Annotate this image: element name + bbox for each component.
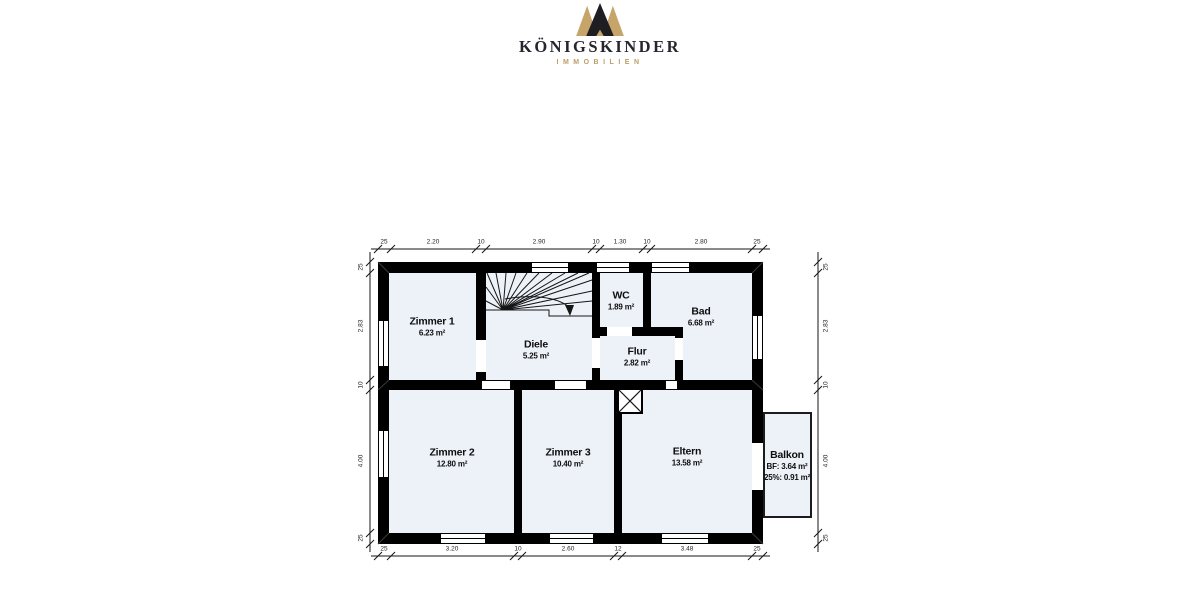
dim-label-top-6: 10 <box>643 239 650 246</box>
dim-label-bottom-1: 3.20 <box>446 546 459 553</box>
door-wc-flur <box>607 327 632 336</box>
window-left-zimmer2 <box>378 430 389 478</box>
dim-label-bottom-0: 25 <box>380 546 387 553</box>
window-bottom-zimmer3 <box>549 533 594 544</box>
room-bad-lower <box>683 327 752 380</box>
dim-label-right-2: 10 <box>823 381 830 388</box>
room-label-zimmer3: Zimmer 3 10.40 m² <box>545 447 590 469</box>
window-top-diele <box>531 262 569 273</box>
door-flur-eltern <box>665 380 678 390</box>
page: KÖNIGSKINDER IMMOBILIEN <box>0 0 1200 600</box>
dim-label-bottom-2: 10 <box>514 546 521 553</box>
dim-label-left-4: 25 <box>358 534 365 541</box>
dim-label-top-8: 25 <box>753 239 760 246</box>
dim-label-bottom-6: 25 <box>753 546 760 553</box>
room-label-zimmer1: Zimmer 1 6.23 m² <box>409 316 454 338</box>
dim-label-bottom-3: 2.60 <box>562 546 575 553</box>
window-bottom-zimmer2 <box>440 533 486 544</box>
dim-label-left-3: 4.00 <box>358 455 365 468</box>
brand-name: KÖNIGSKINDER <box>0 37 1200 57</box>
dim-label-right-0: 25 <box>823 263 830 270</box>
door-balcony <box>752 443 763 490</box>
door-diele-zimmer2 <box>481 380 511 390</box>
dim-label-right-3: 4.00 <box>823 455 830 468</box>
dim-label-top-3: 2.90 <box>533 239 546 246</box>
window-top-wc <box>596 262 630 273</box>
dim-label-left-2: 10 <box>358 381 365 388</box>
dim-label-top-7: 2.80 <box>695 239 708 246</box>
dim-label-top-2: 10 <box>477 239 484 246</box>
dim-label-top-4: 10 <box>592 239 599 246</box>
dim-label-top-5: 1.30 <box>614 239 627 246</box>
window-left-zimmer1 <box>378 320 389 367</box>
chimney <box>617 388 643 414</box>
dim-label-bottom-4: 12 <box>614 546 621 553</box>
room-label-bad: Bad 6.68 m² <box>688 306 714 328</box>
dim-label-bottom-5: 3.48 <box>681 546 694 553</box>
dim-label-top-1: 2.20 <box>427 239 440 246</box>
room-label-flur: Flur 2.82 m² <box>624 346 650 368</box>
room-diele <box>486 273 592 380</box>
room-label-diele: Diele 5.25 m² <box>523 339 549 361</box>
brand-logo: KÖNIGSKINDER IMMOBILIEN <box>0 3 1200 66</box>
room-label-eltern: Eltern 13.58 m² <box>672 446 702 468</box>
window-top-bad <box>651 262 690 273</box>
window-bottom-eltern <box>661 533 709 544</box>
door-diele-zimmer3 <box>554 380 587 390</box>
room-label-zimmer2: Zimmer 2 12.80 m² <box>429 447 474 469</box>
dim-label-right-1: 2.83 <box>823 320 830 333</box>
door-zimmer1-diele <box>476 340 486 372</box>
brand-tagline: IMMOBILIEN <box>0 59 1200 66</box>
door-flur-bad <box>675 338 683 360</box>
crown-icon <box>574 3 626 36</box>
dim-label-left-0: 25 <box>358 263 365 270</box>
door-diele-flur <box>592 338 600 368</box>
dim-label-left-1: 2.83 <box>358 320 365 333</box>
window-right-bad <box>752 315 763 360</box>
room-label-balkon: Balkon BF: 3.64 m² 25%: 0.91 m² <box>764 450 810 482</box>
dim-label-right-4: 25 <box>823 534 830 541</box>
dim-label-top-0: 25 <box>380 239 387 246</box>
room-label-wc: WC 1.89 m² <box>608 290 634 312</box>
